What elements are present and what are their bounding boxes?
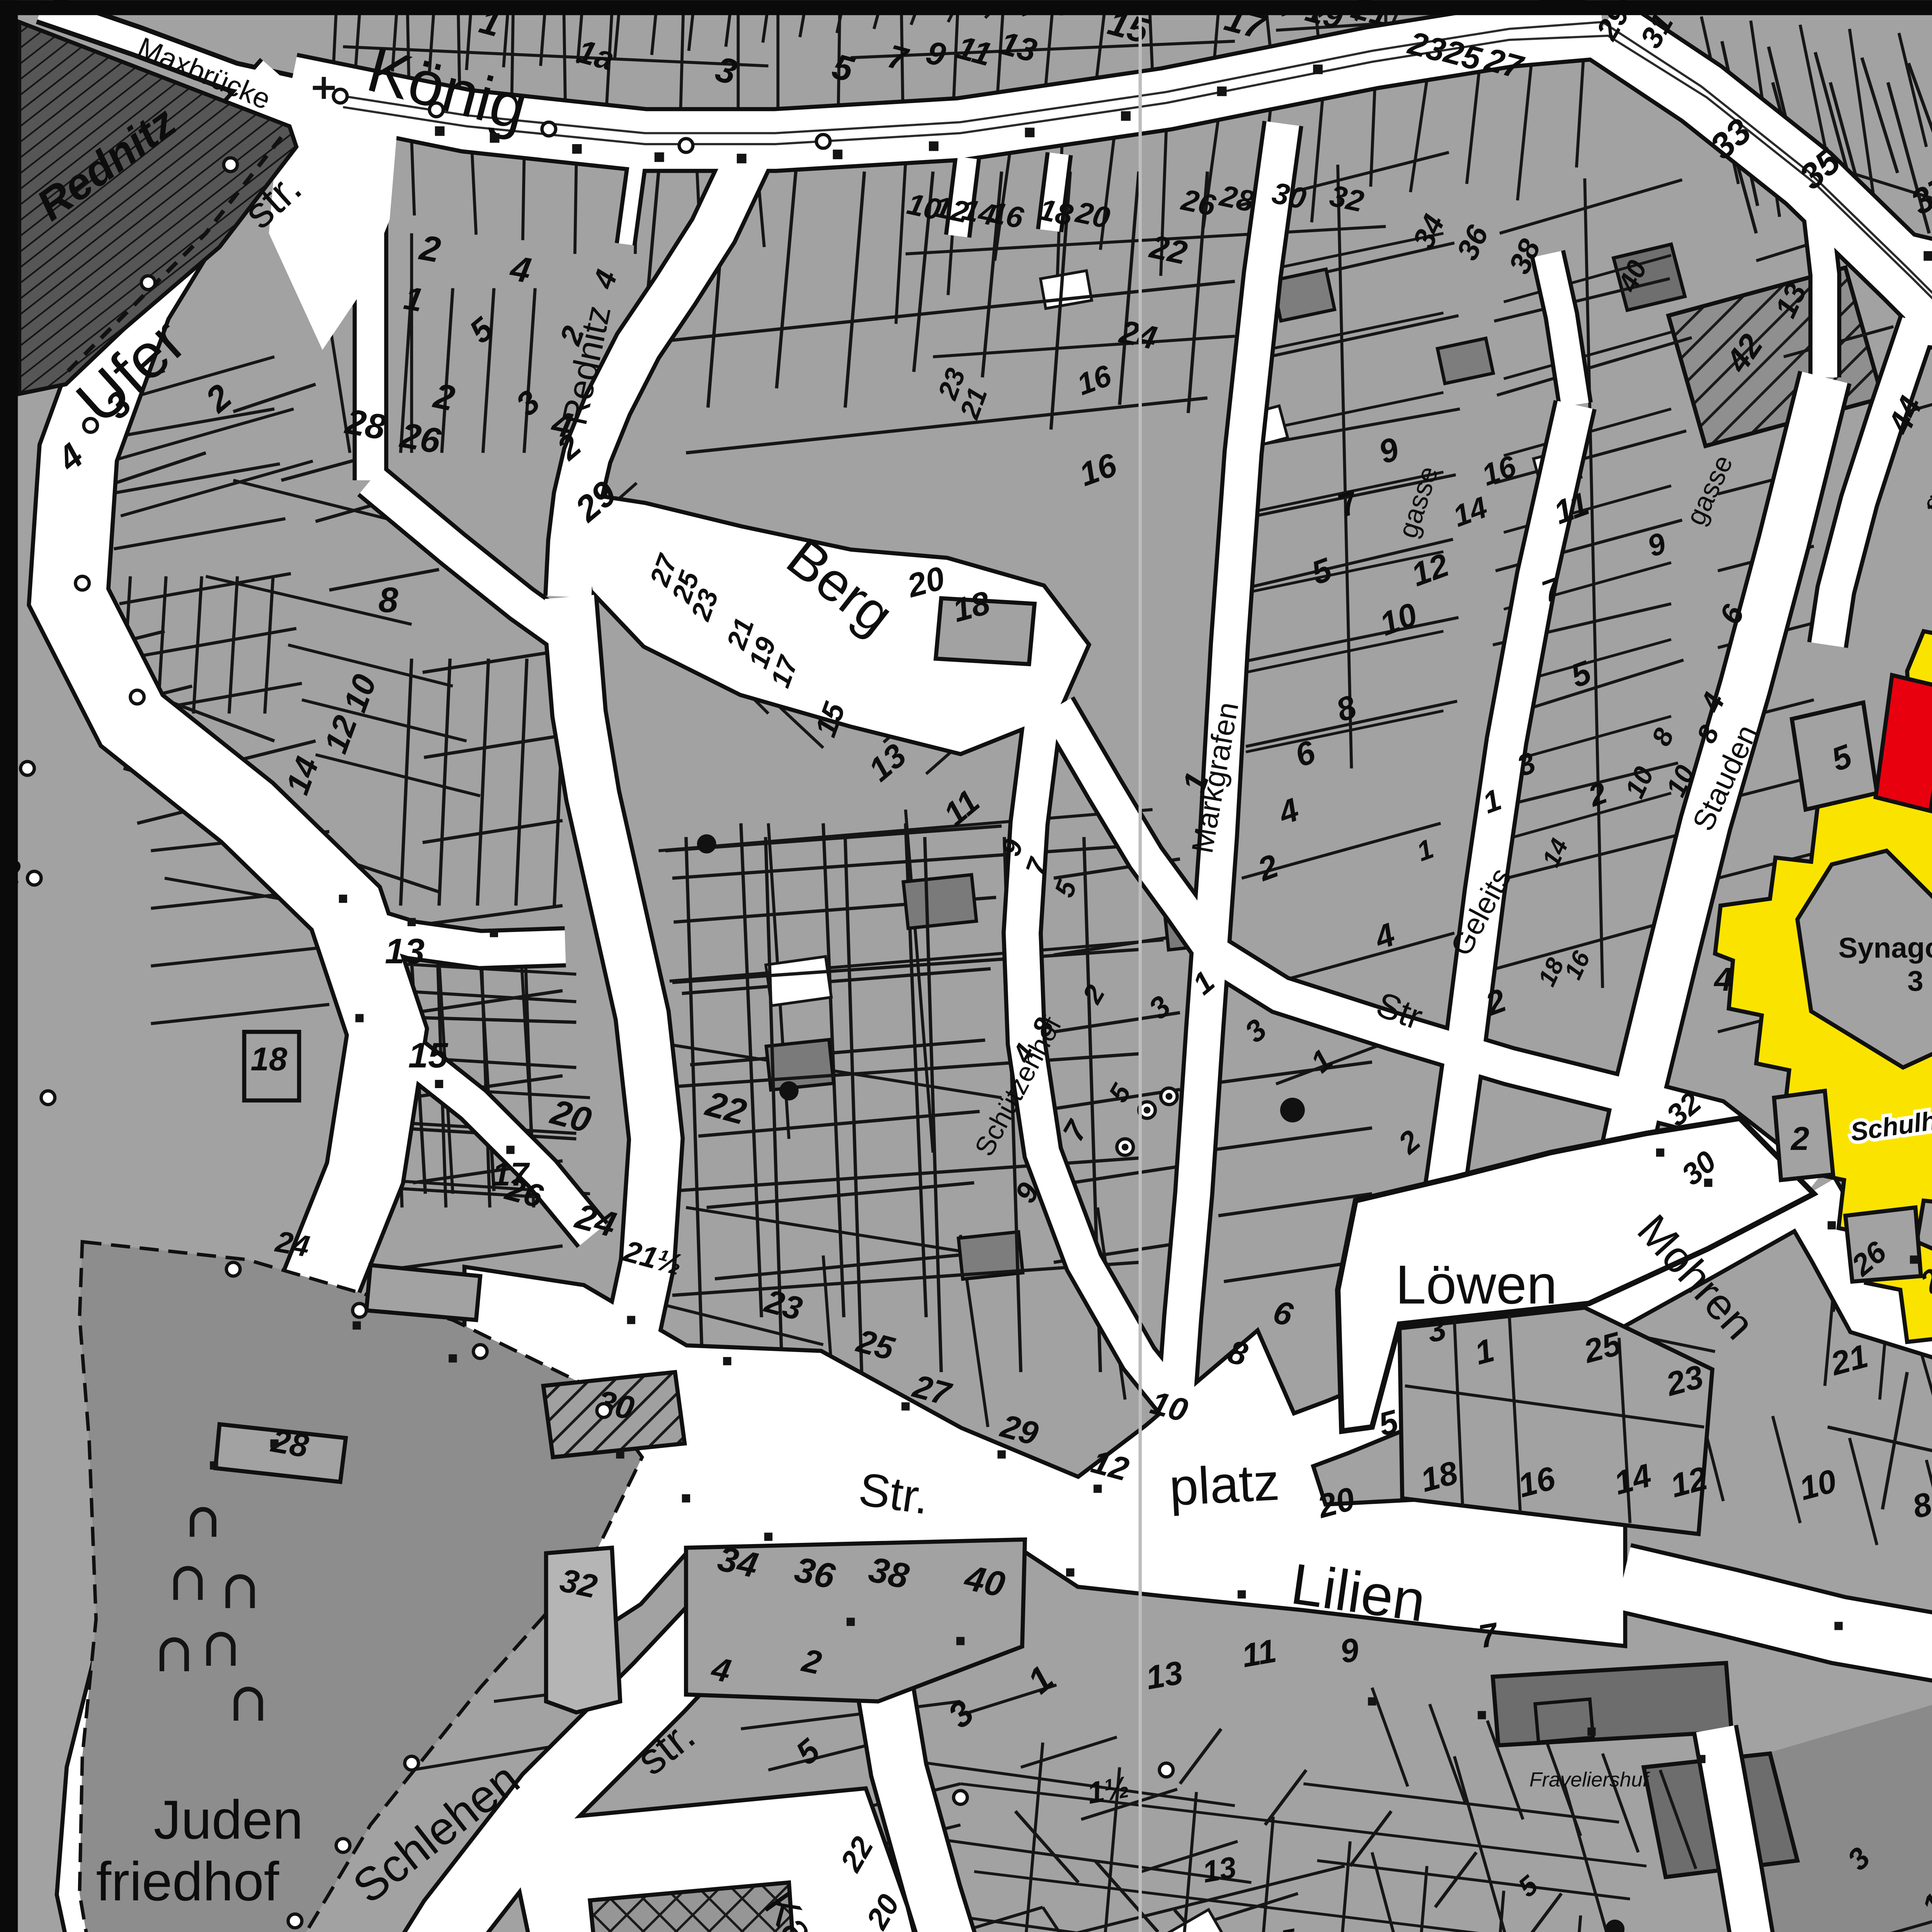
svg-text:16: 16 bbox=[986, 195, 1027, 235]
svg-text:4: 4 bbox=[1713, 961, 1732, 998]
svg-text:18: 18 bbox=[1036, 192, 1076, 232]
svg-text:30: 30 bbox=[1269, 175, 1309, 216]
svg-text:Synagoge: Synagoge bbox=[1838, 932, 1932, 964]
svg-text:26: 26 bbox=[1178, 182, 1219, 223]
svg-text:Fraveliershuf: Fraveliershuf bbox=[1529, 1768, 1650, 1791]
svg-text:1½: 1½ bbox=[1085, 1770, 1132, 1811]
svg-text:34: 34 bbox=[714, 1538, 762, 1585]
svg-text:32: 32 bbox=[557, 1562, 600, 1605]
svg-text:28: 28 bbox=[342, 401, 389, 447]
svg-text:3: 3 bbox=[1907, 965, 1923, 997]
svg-text:24: 24 bbox=[1116, 313, 1160, 357]
svg-text:8: 8 bbox=[378, 580, 398, 620]
svg-text:13: 13 bbox=[385, 931, 425, 971]
svg-text:20: 20 bbox=[1072, 195, 1113, 235]
svg-text:platz: platz bbox=[1168, 1452, 1281, 1517]
svg-text:15: 15 bbox=[408, 1035, 449, 1075]
svg-text:13: 13 bbox=[1200, 1850, 1239, 1889]
svg-text:28: 28 bbox=[1216, 178, 1257, 219]
svg-text:18: 18 bbox=[251, 1041, 287, 1078]
svg-text:friedhof: friedhof bbox=[96, 1851, 279, 1912]
svg-text:32: 32 bbox=[1327, 178, 1367, 218]
svg-text:24: 24 bbox=[272, 1224, 312, 1264]
svg-text:13: 13 bbox=[1143, 1654, 1185, 1697]
svg-text:2: 2 bbox=[1790, 1121, 1809, 1157]
svg-text:38: 38 bbox=[865, 1549, 913, 1597]
svg-text:11: 11 bbox=[1239, 1633, 1279, 1675]
svg-text:Löwen: Löwen bbox=[1395, 1254, 1557, 1315]
svg-text:Str.: Str. bbox=[856, 1463, 932, 1524]
svg-text:22: 22 bbox=[1146, 228, 1190, 272]
svg-text:36: 36 bbox=[791, 1549, 839, 1597]
svg-text:26: 26 bbox=[397, 415, 444, 461]
svg-text:Juden: Juden bbox=[154, 1789, 303, 1850]
svg-text:40: 40 bbox=[961, 1557, 1009, 1604]
